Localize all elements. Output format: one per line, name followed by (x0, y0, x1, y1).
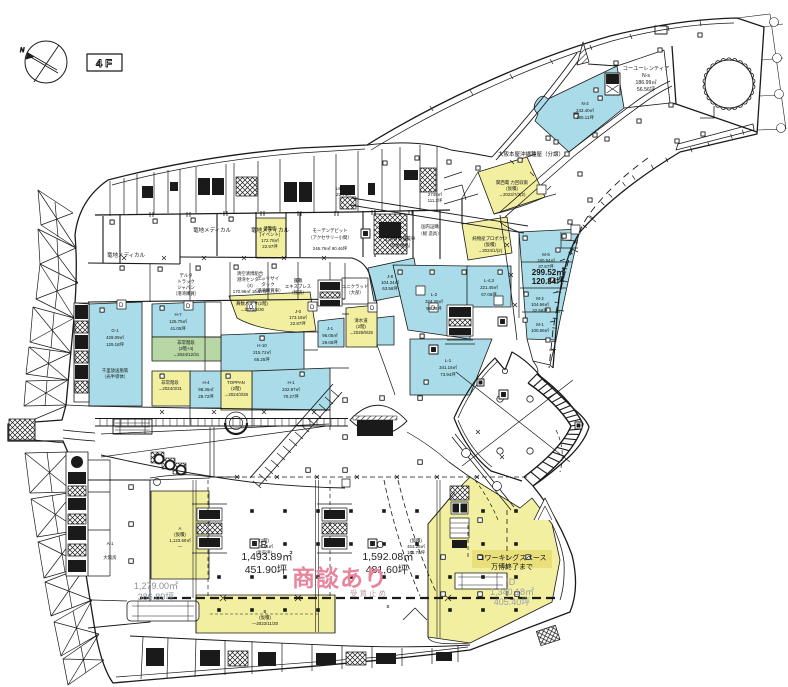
svg-text:1,123.60㎡: 1,123.60㎡ (169, 537, 191, 543)
svg-text:29.05坪: 29.05坪 (322, 339, 338, 346)
svg-text:56.56坪: 56.56坪 (637, 85, 655, 93)
svg-text:(4): (4) (247, 283, 253, 288)
svg-text:A-1: A-1 (107, 541, 114, 546)
svg-text:→2025/9/25: →2025/9/25 (349, 330, 373, 335)
svg-text:H-10: H-10 (257, 343, 267, 348)
svg-text:104.66㎡: 104.66㎡ (531, 301, 549, 307)
svg-text:41.05坪: 41.05坪 (170, 325, 186, 332)
svg-text:B: B (264, 609, 267, 614)
svg-text:（アクセサリー小間）: （アクセサリー小間） (308, 234, 352, 241)
svg-text:大阪房: 大阪房 (103, 554, 117, 561)
svg-text:（総 造具）: （総 造具） (418, 230, 441, 237)
svg-text:L-2: L-2 (431, 292, 438, 297)
svg-text:清水道: 清水道 (354, 317, 368, 324)
svg-text:A: A (179, 526, 182, 531)
svg-text:32.66坪: 32.66坪 (532, 307, 548, 314)
svg-text:（奈金用品）: （奈金用品） (387, 242, 413, 249)
svg-text:N-s: N-s (642, 73, 650, 79)
svg-text:D: D (370, 306, 375, 312)
svg-text:1,592.08㎡: 1,592.08㎡ (362, 551, 414, 563)
svg-text:22.97坪: 22.97坪 (262, 243, 278, 250)
svg-text:商談あり: 商談あり (292, 565, 388, 591)
svg-text:N-3: N-3 (581, 101, 589, 106)
svg-text:120.84坪: 120.84坪 (532, 276, 564, 286)
svg-text:千里放送施策: 千里放送施策 (102, 367, 129, 374)
svg-text:ジャパン: ジャパン (177, 285, 195, 290)
svg-text:405.40坪: 405.40坪 (494, 597, 531, 607)
svg-text:（光半導体）: （光半導体） (102, 373, 128, 380)
svg-text:111.2坪: 111.2坪 (428, 197, 443, 204)
svg-text:324.26㎡: 324.26㎡ (425, 298, 443, 304)
svg-text:J-0: J-0 (295, 309, 302, 314)
svg-text:(仮積): (仮積) (174, 531, 186, 538)
svg-text:67.06坪: 67.06坪 (481, 291, 497, 298)
svg-text:172.78㎡: 172.78㎡ (261, 237, 279, 243)
svg-text:受賃止め: 受賃止め (350, 588, 388, 598)
svg-text:M-5: M-5 (542, 252, 550, 257)
svg-text:98.36㎡: 98.36㎡ (198, 386, 214, 392)
svg-text:(仮積): (仮積) (506, 185, 518, 192)
svg-text:L-1: L-1 (445, 358, 452, 363)
svg-text:96.05㎡: 96.05㎡ (322, 332, 338, 338)
svg-text:D: D (310, 305, 315, 311)
svg-text:B: B (260, 539, 267, 551)
svg-text:D: D (119, 303, 124, 309)
svg-text:J-8: J-8 (387, 274, 394, 279)
svg-text:G-1: G-1 (111, 328, 119, 333)
svg-text:22.76坪: 22.76坪 (336, 191, 352, 198)
svg-text:104.34㎡: 104.34㎡ (381, 279, 399, 285)
svg-text:デルタ: デルタ (179, 272, 192, 279)
svg-text:（港湾購買）: （港湾購買） (173, 290, 199, 297)
svg-text:J-1: J-1 (327, 326, 334, 331)
svg-text:大阪本屋沖縄種屋（分譲）: 大阪本屋沖縄種屋（分譲） (498, 150, 564, 158)
svg-text:105.11坪: 105.11坪 (576, 114, 594, 121)
svg-text:D: D (509, 577, 516, 587)
svg-text:100.69㎡: 100.69㎡ (531, 327, 549, 333)
svg-text:大阪本種胺 南条: 大阪本種胺 南条 (586, 172, 625, 200)
svg-text:63.56坪: 63.56坪 (382, 285, 398, 292)
svg-text:非常階段: 非常階段 (177, 339, 195, 346)
svg-text:→2024/6/30: →2024/6/30 (240, 307, 264, 312)
svg-text:170.96㎡ 16.67坪: 170.96㎡ 16.67坪 (233, 288, 268, 295)
svg-text:(仮積): (仮積) (484, 241, 496, 248)
svg-text:73.94坪: 73.94坪 (440, 371, 456, 378)
svg-text:H-1: H-1 (287, 380, 295, 385)
svg-text:1,279.00㎡: 1,279.00㎡ (134, 581, 178, 591)
svg-text:125.75㎡: 125.75㎡ (169, 318, 187, 324)
svg-text:98.79坪: 98.79坪 (426, 305, 442, 312)
svg-text:2745㎡: 2745㎡ (428, 191, 443, 197)
svg-text:186.99㎡: 186.99㎡ (635, 78, 657, 86)
svg-text:→2024/3/31: →2024/3/31 (158, 386, 182, 391)
svg-text:M-2: M-2 (536, 296, 544, 301)
svg-text:4 F: 4 F (96, 58, 112, 70)
svg-text:舞数ハギサ(2階): 舞数ハギサ(2階) (236, 300, 268, 307)
svg-text:関西電 力回収衛: 関西電 力回収衛 (496, 179, 529, 186)
svg-text:L-4,3: L-4,3 (484, 278, 495, 283)
svg-text:—: — (178, 544, 183, 549)
svg-text:(仮積): (仮積) (410, 537, 422, 544)
svg-text:70.27坪: 70.27坪 (283, 393, 299, 400)
svg-text:→2023/7/3(2): →2023/7/3(2) (499, 192, 526, 197)
svg-text:純物産プロポクツ: 純物産プロポクツ (472, 235, 507, 242)
svg-text:上海食費検覧車: 上海食費検覧車 (385, 235, 416, 242)
svg-text:341.16㎡: 341.16㎡ (439, 364, 457, 370)
svg-text:(2階): (2階) (231, 385, 241, 392)
svg-text:(2階): (2階) (356, 323, 366, 330)
svg-text:万博終了まで: 万博終了まで (491, 562, 533, 571)
svg-text:清空清博組合: 清空清博組合 (237, 270, 264, 277)
svg-text:173.18㎡: 173.18㎡ (289, 314, 307, 320)
svg-text:（大部）: （大部） (346, 289, 364, 296)
svg-text:TOPPAN: TOPPAN (227, 380, 245, 385)
svg-text:（公開緑化帯）: （公開緑化帯） (587, 180, 624, 207)
svg-text:299.52㎡: 299.52㎡ (532, 267, 564, 277)
svg-text:→2024/3/28: →2024/3/28 (224, 392, 248, 397)
svg-text:(2階+4): (2階+4) (179, 345, 194, 352)
svg-text:国内証購: 国内証購 (421, 223, 439, 230)
svg-text:65.25坪: 65.25坪 (254, 356, 270, 363)
svg-text:H-7: H-7 (174, 312, 182, 317)
svg-text:180.84㎡: 180.84㎡ (537, 257, 555, 263)
svg-text:29.72坪: 29.72坪 (198, 393, 214, 400)
svg-text:M-1: M-1 (536, 322, 544, 327)
svg-text:モーデンデビット: モーデンデビット (312, 227, 347, 234)
svg-text:コワーキングスペース: コワーキングスペース (478, 553, 547, 562)
svg-text:→2024/1/(2): →2024/1/(2) (478, 248, 503, 253)
svg-text:1,340.18㎡: 1,340.18㎡ (490, 587, 534, 597)
svg-text:竜地メディカル: 竜地メディカル (193, 226, 232, 234)
svg-text:1,493.89㎡: 1,493.89㎡ (241, 551, 293, 563)
svg-text:→2024/12/31: →2024/12/31 (173, 352, 200, 357)
svg-text:148.13㎡: 148.13㎡ (335, 185, 353, 191)
svg-text:429.09㎡: 429.09㎡ (106, 334, 124, 340)
svg-text:246.76㎡ 90.46坪: 246.76㎡ 90.46坪 (313, 245, 348, 252)
svg-text:453.26㎡: 453.26㎡ (407, 543, 425, 549)
svg-text:386.89坪: 386.89坪 (138, 592, 175, 602)
svg-text:215.72㎡: 215.72㎡ (253, 349, 271, 355)
svg-text:22.87坪: 22.87坪 (290, 320, 306, 327)
svg-text:D: D (186, 304, 191, 310)
svg-text:129.18坪: 129.18坪 (106, 341, 124, 348)
svg-text:H-4: H-4 (202, 380, 210, 385)
svg-text:232.97㎡: 232.97㎡ (282, 386, 300, 392)
svg-text:N: N (20, 48, 25, 54)
svg-text:非常階段: 非常階段 (161, 379, 179, 386)
svg-text:コーユーレンティア: コーユーレンティア (623, 65, 669, 72)
svg-text:タック: タック (261, 281, 274, 288)
svg-text:221.45㎡: 221.45㎡ (480, 284, 498, 290)
svg-text:—2023/11/30: —2023/11/30 (252, 621, 279, 626)
svg-text:竜地メディカル: 竜地メディカル (251, 226, 290, 234)
svg-text:港湾センター: 港湾センター (237, 276, 263, 283)
svg-text:242.40㎡: 242.40㎡ (576, 107, 594, 113)
svg-text:（物流）: （物流） (289, 289, 307, 296)
svg-text:451.90坪: 451.90坪 (245, 563, 288, 576)
svg-text:(仮積): (仮積) (259, 614, 271, 621)
svg-text:護難: 護難 (294, 277, 303, 284)
svg-text:B: B (387, 604, 390, 609)
svg-text:竜地メディカル: 竜地メディカル (107, 251, 146, 259)
